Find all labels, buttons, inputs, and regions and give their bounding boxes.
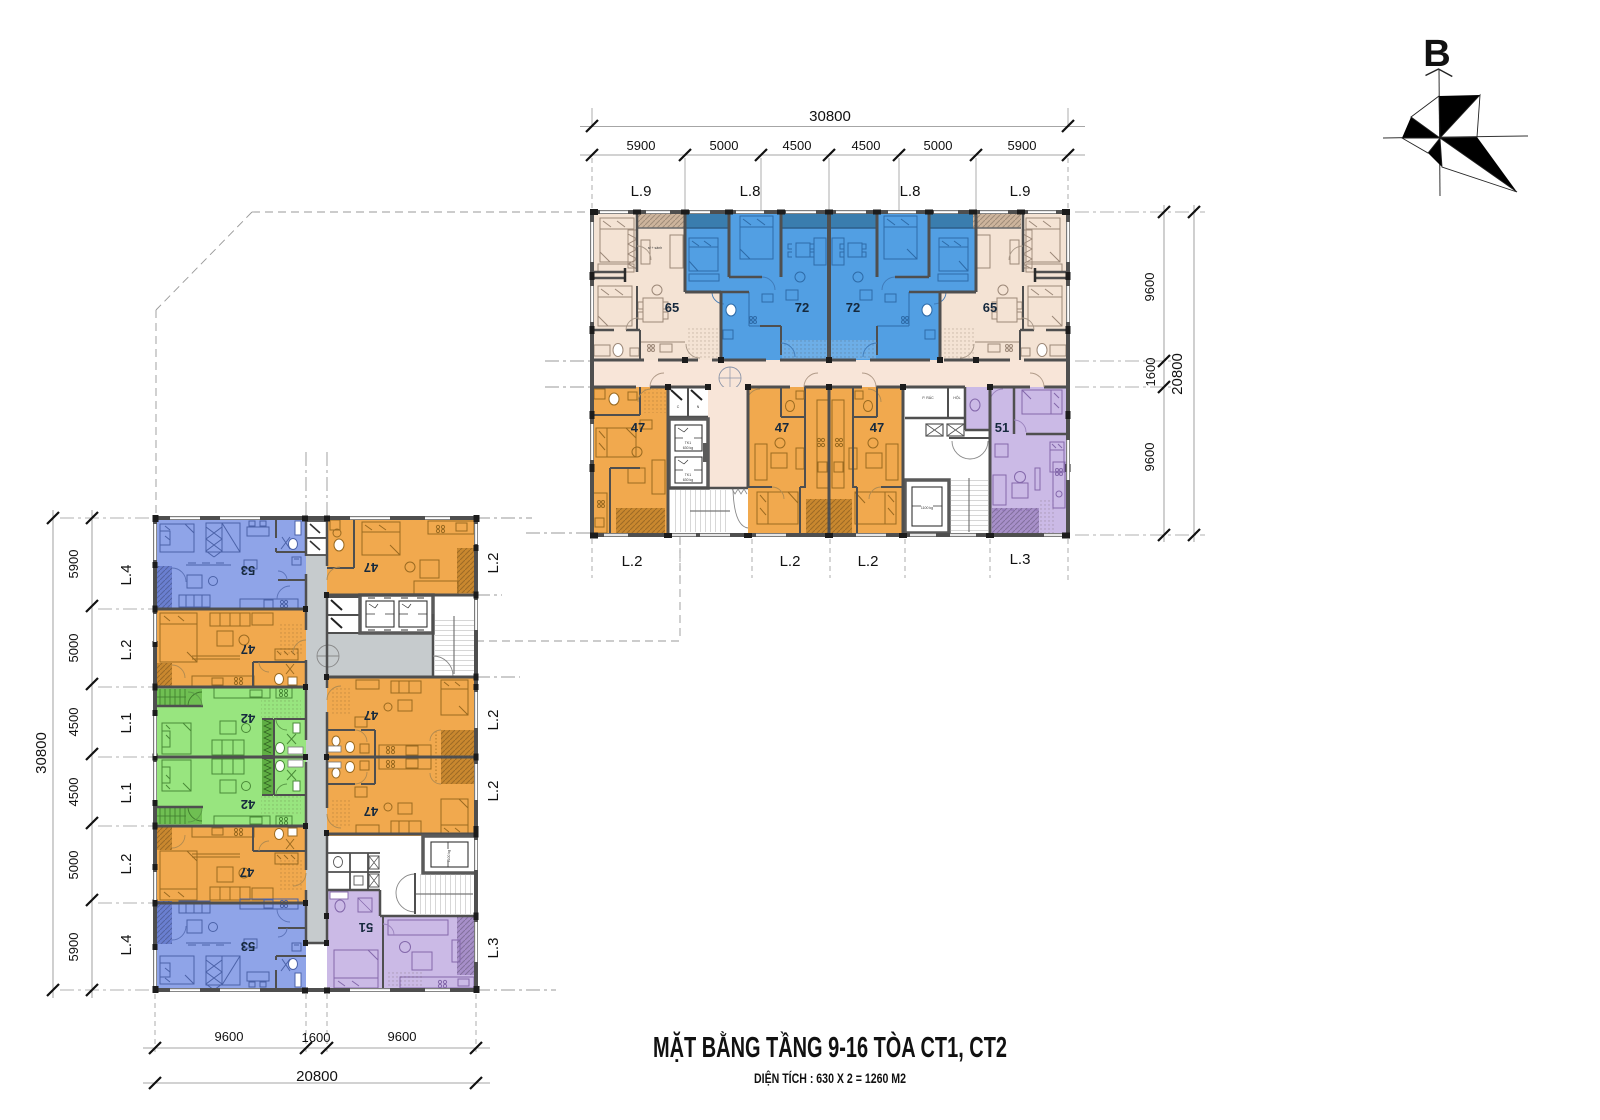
svg-text:47: 47	[241, 642, 255, 657]
svg-text:1600: 1600	[1143, 358, 1158, 387]
svg-text:72: 72	[795, 300, 809, 315]
svg-text:53: 53	[241, 939, 255, 954]
svg-text:B: B	[1423, 33, 1450, 75]
svg-text:L.4: L.4	[118, 935, 135, 956]
svg-text:sf + sảnh: sf + sảnh	[648, 246, 662, 250]
svg-text:5900: 5900	[1008, 138, 1037, 153]
svg-text:47: 47	[240, 865, 254, 880]
svg-text:5900: 5900	[627, 138, 656, 153]
svg-text:5000: 5000	[924, 138, 953, 153]
svg-text:65: 65	[983, 300, 997, 315]
svg-text:L.2: L.2	[780, 553, 801, 570]
svg-text:L.2: L.2	[622, 553, 643, 570]
svg-text:L.3: L.3	[1010, 551, 1031, 568]
svg-text:9600: 9600	[388, 1029, 417, 1044]
svg-text:20800: 20800	[1169, 353, 1186, 395]
svg-text:630 kg: 630 kg	[683, 478, 694, 482]
svg-text:30800: 30800	[33, 732, 50, 774]
svg-text:5000: 5000	[66, 634, 81, 663]
svg-text:47: 47	[364, 560, 378, 575]
svg-text:1100 kg: 1100 kg	[921, 506, 933, 510]
svg-text:47: 47	[631, 420, 645, 435]
svg-text:47: 47	[364, 804, 378, 819]
svg-text:L.1: L.1	[118, 713, 135, 734]
svg-text:L.9: L.9	[631, 183, 652, 200]
svg-text:5900: 5900	[66, 550, 81, 579]
svg-text:4500: 4500	[66, 778, 81, 807]
svg-text:5900: 5900	[66, 933, 81, 962]
svg-text:4500: 4500	[66, 708, 81, 737]
svg-text:HỘL: HỘL	[953, 395, 960, 400]
svg-text:47: 47	[870, 420, 884, 435]
svg-text:9600: 9600	[1142, 273, 1157, 302]
svg-text:5000: 5000	[710, 138, 739, 153]
svg-text:TK1: TK1	[685, 473, 691, 477]
svg-text:L.4: L.4	[118, 565, 135, 586]
svg-text:L.2: L.2	[858, 553, 879, 570]
svg-text:TK1: TK1	[685, 441, 691, 445]
svg-text:4500: 4500	[783, 138, 812, 153]
svg-text:1100 kg: 1100 kg	[447, 850, 451, 862]
svg-text:30800: 30800	[809, 108, 851, 125]
svg-text:L.2: L.2	[485, 553, 502, 574]
svg-text:51: 51	[359, 920, 373, 935]
svg-text:4500: 4500	[852, 138, 881, 153]
svg-text:42: 42	[241, 711, 255, 726]
svg-text:L.2: L.2	[485, 781, 502, 802]
svg-text:42: 42	[241, 797, 255, 812]
svg-text:MẶT BẰNG TẦNG 9-16 TÒA CT1, CT: MẶT BẰNG TẦNG 9-16 TÒA CT1, CT2	[653, 1030, 1007, 1064]
svg-text:L.2: L.2	[118, 854, 135, 875]
svg-text:47: 47	[364, 708, 378, 723]
svg-text:L.1: L.1	[118, 783, 135, 804]
svg-text:65: 65	[665, 300, 679, 315]
svg-text:L.2: L.2	[118, 640, 135, 661]
svg-text:9600: 9600	[215, 1029, 244, 1044]
svg-text:L.8: L.8	[900, 183, 921, 200]
svg-text:L.2: L.2	[485, 710, 502, 731]
svg-text:72: 72	[846, 300, 860, 315]
svg-text:53: 53	[241, 563, 255, 578]
svg-text:9600: 9600	[1142, 443, 1157, 472]
svg-text:5000: 5000	[66, 851, 81, 880]
svg-text:L.9: L.9	[1010, 183, 1031, 200]
svg-text:630 kg: 630 kg	[683, 446, 694, 450]
svg-text:L.8: L.8	[740, 183, 761, 200]
svg-text:51: 51	[995, 420, 1009, 435]
svg-text:DIỆN TÍCH : 630 X 2 = 1260 M2: DIỆN TÍCH : 630 X 2 = 1260 M2	[754, 1071, 906, 1086]
svg-text:47: 47	[775, 420, 789, 435]
svg-text:L.3: L.3	[485, 938, 502, 959]
svg-text:P. RÁC: P. RÁC	[922, 396, 934, 400]
svg-text:20800: 20800	[296, 1068, 338, 1085]
svg-text:1600: 1600	[302, 1030, 331, 1045]
